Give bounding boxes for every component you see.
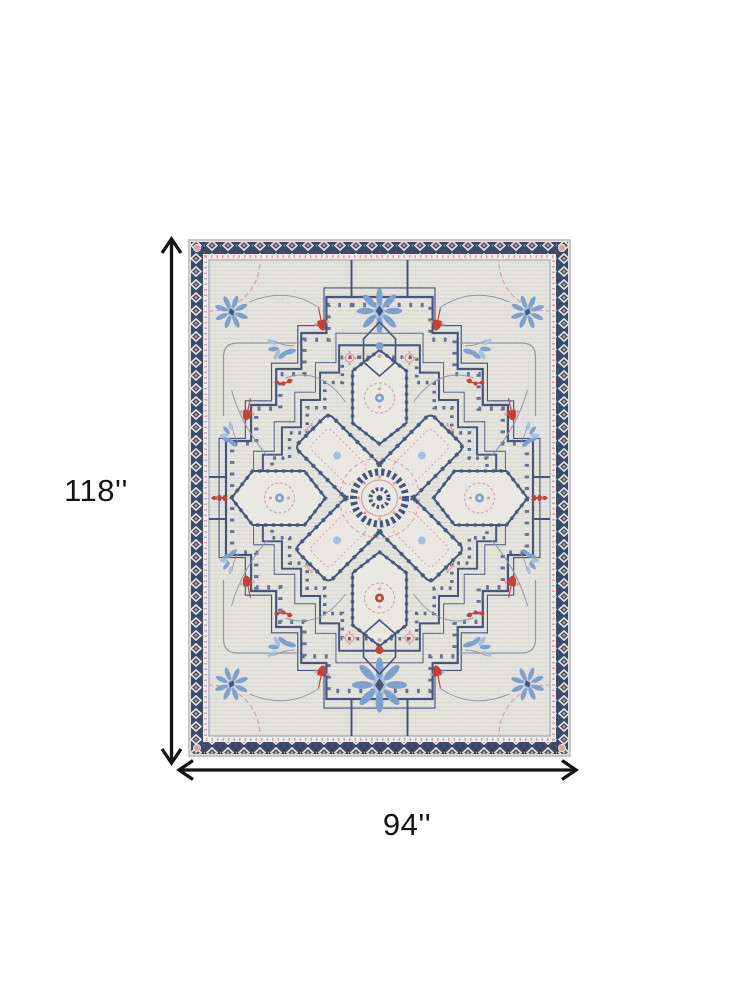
width-dimension-label: 94'' (383, 807, 431, 843)
rug-image (188, 239, 571, 757)
height-arrow (162, 239, 181, 763)
arrowhead-left-icon (179, 761, 193, 780)
arrowhead-up-icon (162, 239, 181, 253)
product-dimension-diagram: 118'' 94'' (0, 0, 754, 1000)
height-dimension-label: 118'' (64, 473, 128, 509)
arrowhead-right-icon (562, 761, 576, 780)
arrowhead-down-icon (162, 749, 181, 763)
rug-illustration (188, 239, 571, 757)
width-arrow (179, 761, 576, 780)
